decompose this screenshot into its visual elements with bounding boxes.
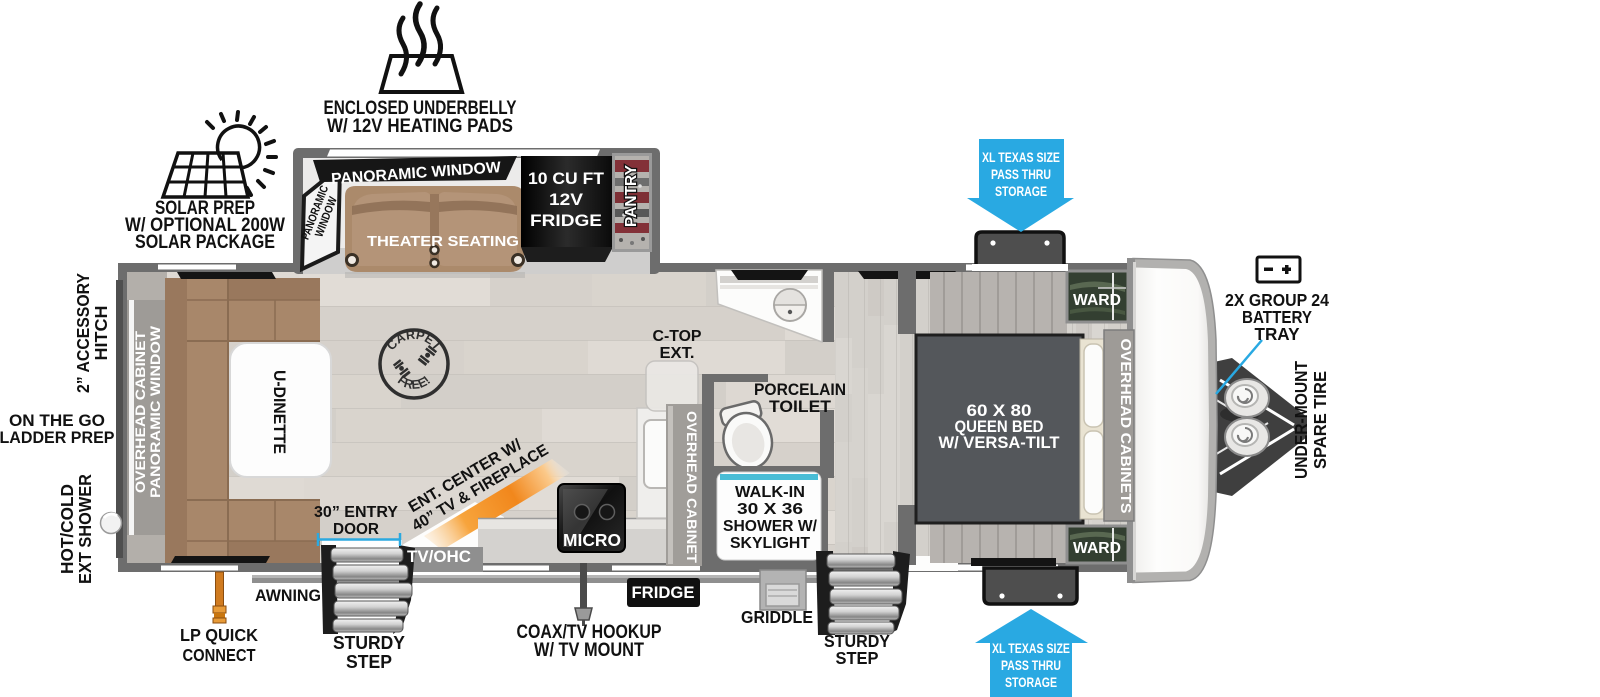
svg-text:WARD: WARD <box>1073 292 1121 309</box>
svg-text:AWNING: AWNING <box>255 586 321 605</box>
svg-text:HOT/COLD: HOT/COLD <box>57 484 77 574</box>
svg-text:W/ TV MOUNT: W/ TV MOUNT <box>534 640 644 661</box>
svg-text:PASS THRU: PASS THRU <box>1001 657 1061 673</box>
svg-text:LADDER PREP: LADDER PREP <box>0 428 115 447</box>
svg-text:TOILET: TOILET <box>769 397 832 416</box>
svg-text:SHOWER W/: SHOWER W/ <box>723 518 818 535</box>
svg-text:PASS THRU: PASS THRU <box>991 166 1051 182</box>
svg-text:TV/OHC: TV/OHC <box>407 547 471 566</box>
svg-text:FRIDGE: FRIDGE <box>530 211 602 230</box>
svg-text:STORAGE: STORAGE <box>995 183 1047 199</box>
svg-text:XL TEXAS SIZE: XL TEXAS SIZE <box>992 640 1070 656</box>
svg-text:W/ VERSA-TILT: W/ VERSA-TILT <box>939 433 1061 452</box>
svg-text:SPARE TIRE: SPARE TIRE <box>1310 371 1330 469</box>
svg-text:2” ACCESSORY: 2” ACCESSORY <box>73 273 93 393</box>
svg-text:W/ 12V HEATING PADS: W/ 12V HEATING PADS <box>327 116 513 137</box>
svg-text:SKYLIGHT: SKYLIGHT <box>730 535 810 552</box>
svg-text:PANTRY: PANTRY <box>623 165 640 227</box>
svg-text:HITCH: HITCH <box>91 306 111 361</box>
svg-text:OVERHEAD CABINET: OVERHEAD CABINET <box>133 330 148 493</box>
svg-text:WARD: WARD <box>1073 540 1121 557</box>
svg-text:EXT SHOWER: EXT SHOWER <box>75 474 95 584</box>
svg-text:12V: 12V <box>549 190 584 209</box>
svg-text:U-DINETTE: U-DINETTE <box>270 370 289 454</box>
svg-text:STURDY: STURDY <box>333 633 405 653</box>
svg-text:OVERHEAD CABINET: OVERHEAD CABINET <box>684 411 699 564</box>
svg-text:C-TOP: C-TOP <box>653 328 702 345</box>
svg-text:LP QUICK: LP QUICK <box>180 625 258 645</box>
svg-text:STEP: STEP <box>346 652 392 672</box>
svg-text:UNDER-MOUNT: UNDER-MOUNT <box>1291 361 1311 479</box>
svg-text:GRIDDLE: GRIDDLE <box>741 607 813 627</box>
svg-text:STEP: STEP <box>836 648 879 668</box>
svg-text:10 CU FT: 10 CU FT <box>528 169 605 188</box>
svg-text:DOOR: DOOR <box>333 521 379 538</box>
svg-text:THEATER SEATING: THEATER SEATING <box>367 233 519 250</box>
svg-text:XL TEXAS SIZE: XL TEXAS SIZE <box>982 149 1060 165</box>
svg-text:30” ENTRY: 30” ENTRY <box>314 504 398 521</box>
svg-text:EXT.: EXT. <box>660 345 695 362</box>
svg-text:STORAGE: STORAGE <box>1005 674 1057 690</box>
svg-text:FRIDGE: FRIDGE <box>632 584 695 602</box>
svg-text:CONNECT: CONNECT <box>183 645 256 665</box>
svg-text:30 X 36: 30 X 36 <box>737 501 803 518</box>
svg-text:WALK-IN: WALK-IN <box>735 484 805 501</box>
svg-text:MICRO: MICRO <box>563 530 621 550</box>
svg-text:TRAY: TRAY <box>1255 324 1300 344</box>
svg-text:PANORAMIC WINDOW: PANORAMIC WINDOW <box>148 326 163 498</box>
svg-text:OVERHEAD CABINETS: OVERHEAD CABINETS <box>1117 339 1134 514</box>
svg-text:SOLAR PACKAGE: SOLAR PACKAGE <box>135 232 275 253</box>
